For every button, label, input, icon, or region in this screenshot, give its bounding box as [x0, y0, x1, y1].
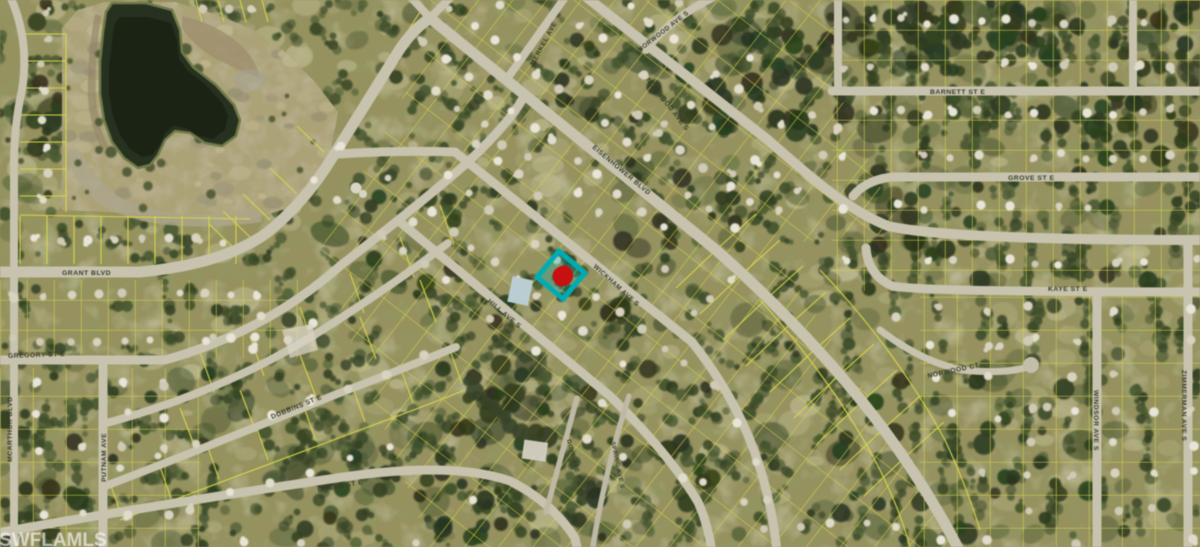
svg-text:WINDSOR AVE S: WINDSOR AVE S [1092, 390, 1099, 451]
svg-text:KAYE ST E: KAYE ST E [1048, 286, 1088, 293]
svg-text:SWFLAMLS: SWFLAMLS [0, 530, 107, 547]
svg-text:BARNETT ST E: BARNETT ST E [930, 89, 985, 96]
svg-text:MCARTHUR BLVD: MCARTHUR BLVD [7, 396, 14, 462]
svg-text:GRANT BLVD: GRANT BLVD [62, 270, 111, 277]
svg-text:PUTNAM AVE: PUTNAM AVE [101, 433, 108, 482]
svg-text:GROVE ST E: GROVE ST E [1008, 175, 1055, 182]
svg-text:ZIMMERMAN AVE S: ZIMMERMAN AVE S [1180, 370, 1187, 441]
